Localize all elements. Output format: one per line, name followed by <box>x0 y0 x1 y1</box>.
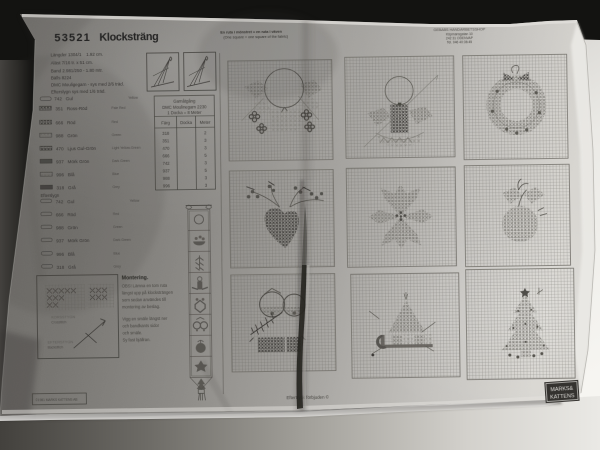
svg-text:Klocksträng: Klocksträng <box>99 31 158 44</box>
svg-text:937 Mörk Grön: 937 Mörk Grön <box>56 238 90 243</box>
svg-text:DMC Mouligegarn - sys med 2/6: DMC Mouligegarn - sys med 2/6 träd. <box>51 81 124 87</box>
svg-text:Band 2.981/250 - 1.80 mtr.: Band 2.981/250 - 1.80 mtr. <box>51 68 103 74</box>
svg-text:Red: Red <box>112 120 118 124</box>
svg-text:Crosstitch: Crosstitch <box>51 320 66 324</box>
svg-text:666 Röd: 666 Röd <box>56 212 76 217</box>
svg-text:742: 742 <box>163 161 171 166</box>
svg-text:Green: Green <box>112 133 122 137</box>
svg-text:996 Blå: 996 Blå <box>56 171 75 177</box>
svg-text:och bandkants sidor: och bandkants sidor <box>122 323 159 329</box>
svg-text:©1981 MARKS KATTENS AB: ©1981 MARKS KATTENS AB <box>35 398 77 403</box>
svg-text:Red: Red <box>113 212 119 216</box>
svg-text:937 Mörk Grön: 937 Mörk Grön <box>56 159 90 164</box>
svg-text:Grey: Grey <box>112 185 120 189</box>
svg-text:Yellow: Yellow <box>130 199 140 203</box>
svg-text:Docka: Docka <box>180 120 193 125</box>
svg-text:Sy fast bjällran.: Sy fast bjällran. <box>123 337 151 342</box>
svg-text:996 Blå: 996 Blå <box>56 251 75 257</box>
svg-text:988: 988 <box>163 176 171 181</box>
svg-text:Eftertryck förbjuden ©: Eftertryck förbjuden © <box>286 395 329 401</box>
svg-text:Light Yellow-Green: Light Yellow-Green <box>112 146 141 150</box>
svg-text:Färg: Färg <box>161 120 170 125</box>
svg-text:Meter: Meter <box>200 120 211 125</box>
svg-text:318 Grå: 318 Grå <box>56 184 76 190</box>
svg-text:Tel. 046 40:36:45: Tel. 046 40:36:45 <box>447 40 473 44</box>
svg-text:988 Grön: 988 Grön <box>56 133 78 138</box>
svg-text:996: 996 <box>163 183 171 188</box>
svg-text:montering av beslag.: montering av beslag. <box>122 304 160 310</box>
svg-text:som sedan användes till: som sedan användes till <box>122 297 166 303</box>
svg-text:Efterslygn sys med 1/6 träd.: Efterslygn sys med 1/6 träd. <box>51 89 105 95</box>
svg-text:Efterslygn: Efterslygn <box>41 193 60 198</box>
svg-text:Bälls 8224: Bälls 8224 <box>51 75 72 80</box>
svg-text:351: 351 <box>162 138 170 143</box>
svg-text:OBS! Lämna en tom ruta: OBS! Lämna en tom ruta <box>122 283 168 289</box>
svg-text:351 Ross-Röd: 351 Ross-Röd <box>55 106 87 111</box>
svg-text:Green: Green <box>113 225 123 229</box>
svg-text:53521: 53521 <box>54 32 91 45</box>
svg-text:och smäle.: och smäle. <box>122 330 142 335</box>
svg-text:742 Gul: 742 Gul <box>56 199 75 204</box>
svg-text:470 Ljus Gul-Grön: 470 Ljus Gul-Grön <box>56 146 97 152</box>
svg-text:937: 937 <box>163 168 171 173</box>
svg-text:Vigg en smäle längst ner: Vigg en smäle längst ner <box>122 316 168 322</box>
svg-text:318 Grå: 318 Grå <box>57 264 77 270</box>
svg-text:666: 666 <box>162 153 170 158</box>
svg-text:KORSSTYGN: KORSSTYGN <box>51 315 75 319</box>
svg-text:Aläst 7/16 tr. x 51 cm.: Aläst 7/16 tr. x 51 cm. <box>51 60 93 66</box>
svg-text:666 Röd: 666 Röd <box>56 120 76 125</box>
svg-text:Dark Green: Dark Green <box>113 238 131 242</box>
svg-text:Grey: Grey <box>114 265 122 269</box>
svg-text:Pale Red: Pale Red <box>111 106 125 110</box>
svg-text:1 Docka = 8 Meter: 1 Docka = 8 Meter <box>167 110 202 115</box>
svg-text:Blue: Blue <box>113 252 120 256</box>
svg-text:742 Gul: 742 Gul <box>54 96 73 101</box>
svg-text:Montering.: Montering. <box>122 275 149 281</box>
svg-text:längst upp på klocksträngen: längst upp på klocksträngen <box>122 290 174 296</box>
svg-text:988 Grön: 988 Grön <box>56 225 78 230</box>
svg-text:Garnåtgång: Garnåtgång <box>173 98 196 103</box>
svg-text:470: 470 <box>162 146 170 151</box>
svg-text:Blue: Blue <box>112 172 119 176</box>
svg-text:Längder 1304/1 1.92 cm.: Längder 1304/1 1.92 cm. <box>51 52 104 58</box>
svg-text:Backstitch: Backstitch <box>48 345 64 349</box>
svg-text:EFTERSTYGN: EFTERSTYGN <box>48 340 74 344</box>
svg-text:318: 318 <box>162 131 170 136</box>
svg-text:Yellow: Yellow <box>128 96 138 100</box>
svg-text:Dark Green: Dark Green <box>112 159 130 163</box>
